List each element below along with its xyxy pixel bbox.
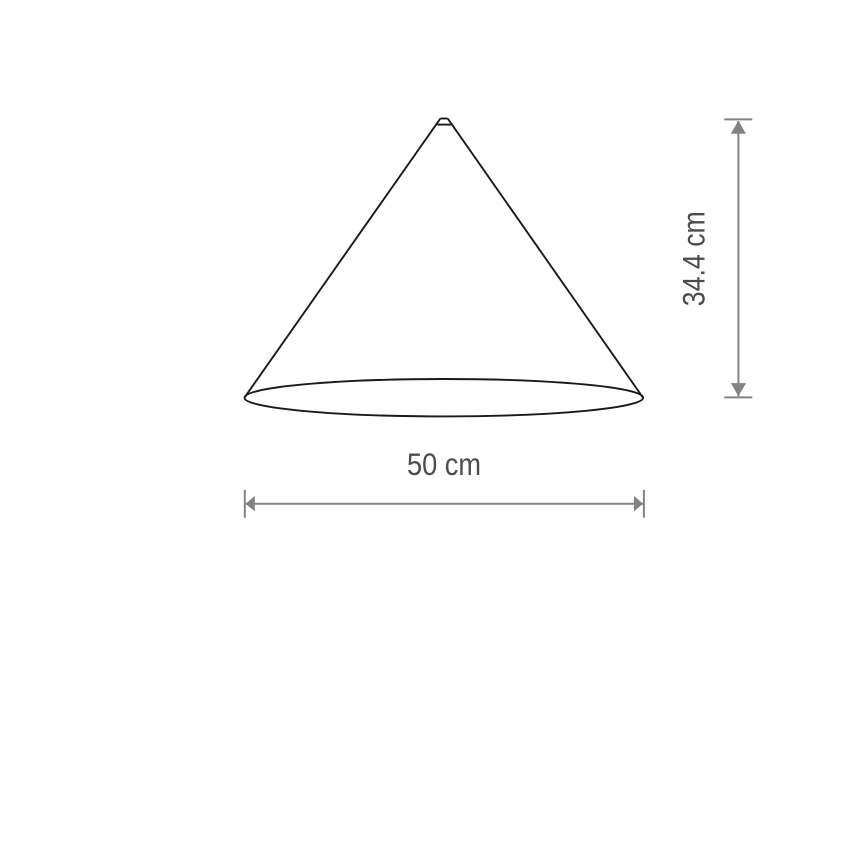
svg-text:50 cm: 50 cm [407, 447, 481, 482]
svg-text:34.4 cm: 34.4 cm [677, 211, 712, 306]
